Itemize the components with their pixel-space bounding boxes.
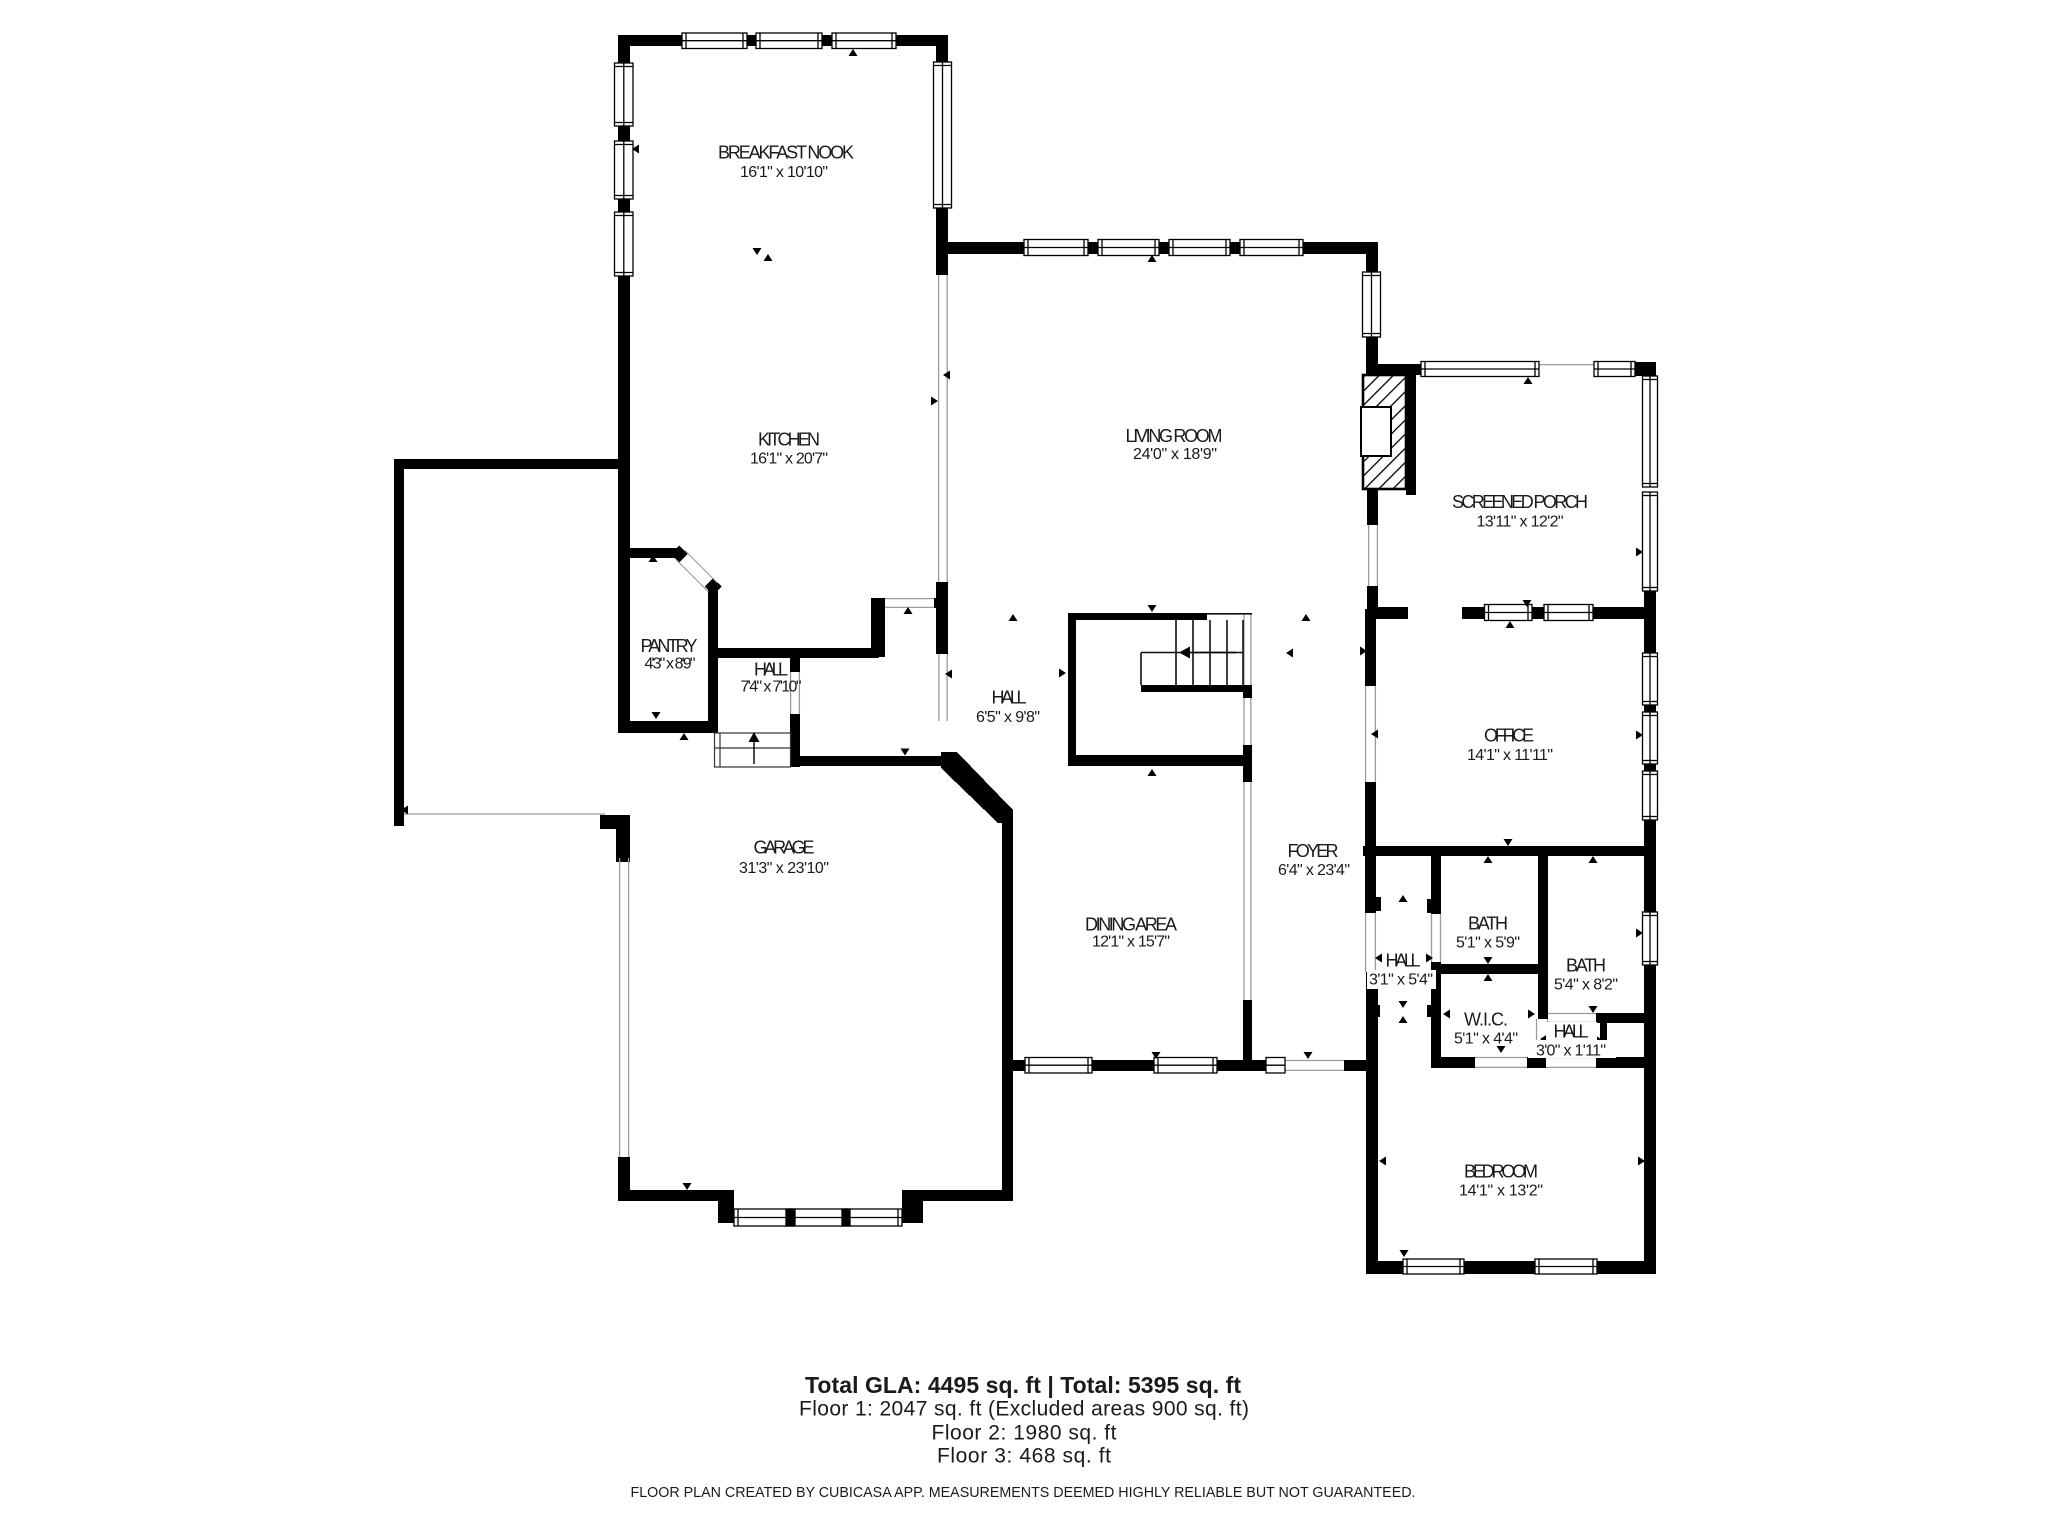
svg-text:6'5" x 9'8": 6'5" x 9'8": [976, 709, 1040, 726]
svg-text:14'1" x 13'2": 14'1" x 13'2": [1459, 1183, 1543, 1200]
svg-text:6'4" x 23'4": 6'4" x 23'4": [1278, 862, 1350, 879]
svg-text:BATH: BATH: [1468, 914, 1508, 934]
svg-text:DINING AREA: DINING AREA: [1085, 915, 1177, 935]
svg-text:HALL: HALL: [1386, 951, 1421, 971]
svg-text:13'11" x 12'2": 13'11" x 12'2": [1477, 514, 1564, 531]
svg-text:24'0" x 18'9": 24'0" x 18'9": [1133, 446, 1217, 463]
svg-text:SCREENED PORCH: SCREENED PORCH: [1452, 492, 1588, 512]
svg-text:GARAGE: GARAGE: [754, 837, 815, 857]
svg-text:5'4" x 8'2": 5'4" x 8'2": [1554, 977, 1618, 994]
svg-text:W.I.C.: W.I.C.: [1464, 1010, 1508, 1030]
svg-text:HALL: HALL: [754, 660, 788, 680]
svg-text:5'1" x 5'9": 5'1" x 5'9": [1456, 935, 1520, 952]
svg-text:16'1" x 20'7": 16'1" x 20'7": [750, 451, 828, 468]
svg-text:31'3" x 23'10": 31'3" x 23'10": [739, 860, 829, 877]
svg-text:PANTRY: PANTRY: [641, 636, 698, 656]
svg-text:5'1" x 4'4": 5'1" x 4'4": [1454, 1031, 1518, 1048]
svg-text:HALL: HALL: [992, 688, 1027, 708]
svg-text:3'0" x 1'11": 3'0" x 1'11": [1536, 1043, 1606, 1060]
svg-text:KITCHEN: KITCHEN: [758, 430, 820, 450]
svg-text:Floor 2: 1980 sq. ft: Floor 2: 1980 sq. ft: [932, 1422, 1117, 1445]
svg-text:FLOOR PLAN CREATED BY CUBICASA: FLOOR PLAN CREATED BY CUBICASA APP. MEAS…: [631, 1484, 1416, 1501]
svg-text:LIVING ROOM: LIVING ROOM: [1126, 426, 1223, 446]
svg-text:Floor 1: 2047 sq. ft (Excluded: Floor 1: 2047 sq. ft (Excluded areas 900…: [799, 1398, 1249, 1421]
svg-text:16'1" x 10'10": 16'1" x 10'10": [740, 164, 828, 181]
svg-text:BREAKFAST NOOK: BREAKFAST NOOK: [718, 143, 854, 163]
svg-text:12'1" x 15'7": 12'1" x 15'7": [1092, 934, 1170, 951]
svg-text:OFFICE: OFFICE: [1484, 725, 1534, 745]
svg-text:BEDROOM: BEDROOM: [1464, 1162, 1538, 1182]
svg-text:7'4" x 7'10": 7'4" x 7'10": [741, 679, 802, 696]
svg-text:HALL: HALL: [1554, 1022, 1589, 1042]
svg-text:Total GLA: 4495 sq. ft | Total: Total GLA: 4495 sq. ft | Total: 5395 sq.…: [805, 1372, 1241, 1398]
svg-text:14'1" x 11'11": 14'1" x 11'11": [1467, 747, 1553, 764]
svg-text:FOYER: FOYER: [1288, 841, 1339, 861]
svg-text:Floor 3: 468 sq. ft: Floor 3: 468 sq. ft: [937, 1445, 1111, 1468]
svg-text:BATH: BATH: [1566, 956, 1606, 976]
svg-text:4'3" x 8'9": 4'3" x 8'9": [645, 656, 696, 673]
svg-text:3'1" x 5'4": 3'1" x 5'4": [1369, 972, 1433, 989]
